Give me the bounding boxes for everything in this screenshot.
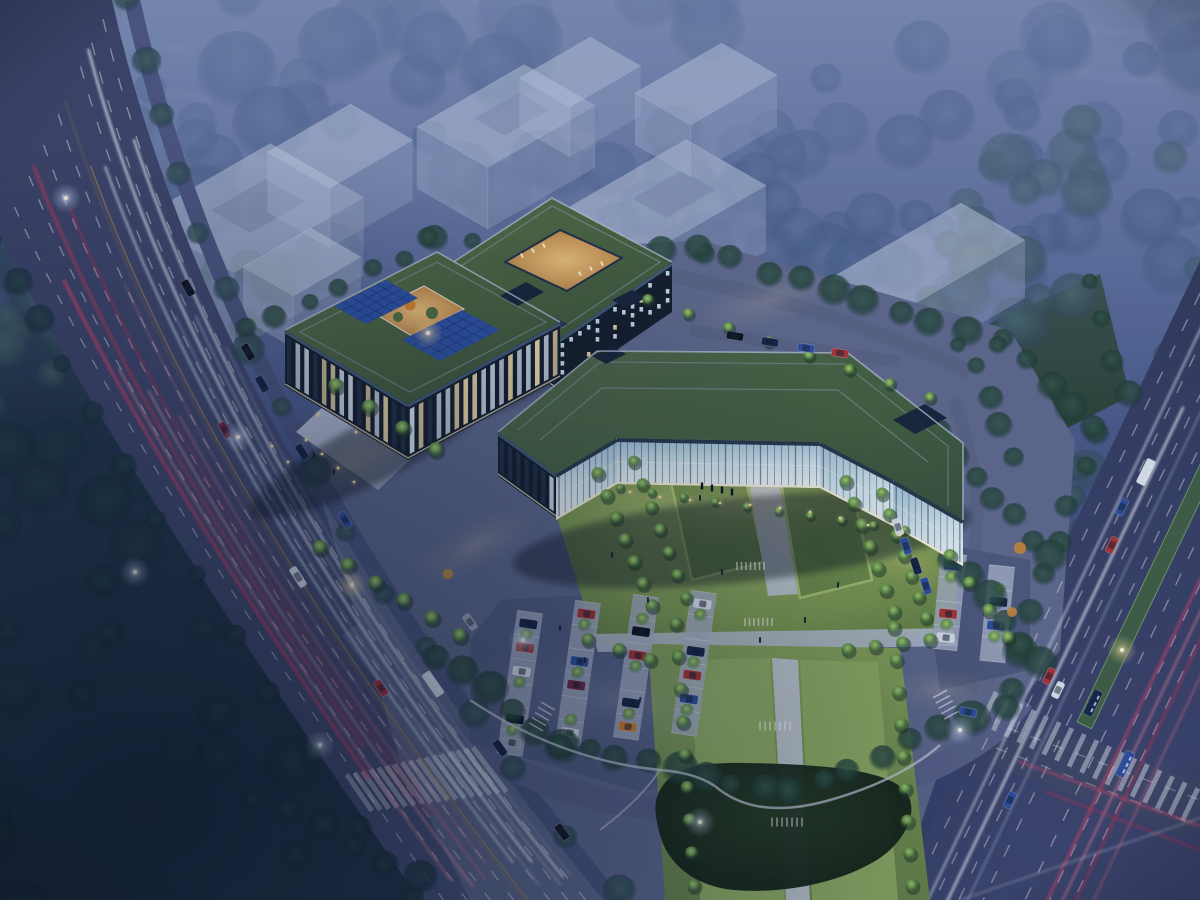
rendering-canvas — [0, 0, 1200, 900]
blue-tone-unifier — [0, 0, 1200, 900]
scene-svg — [0, 0, 1200, 900]
